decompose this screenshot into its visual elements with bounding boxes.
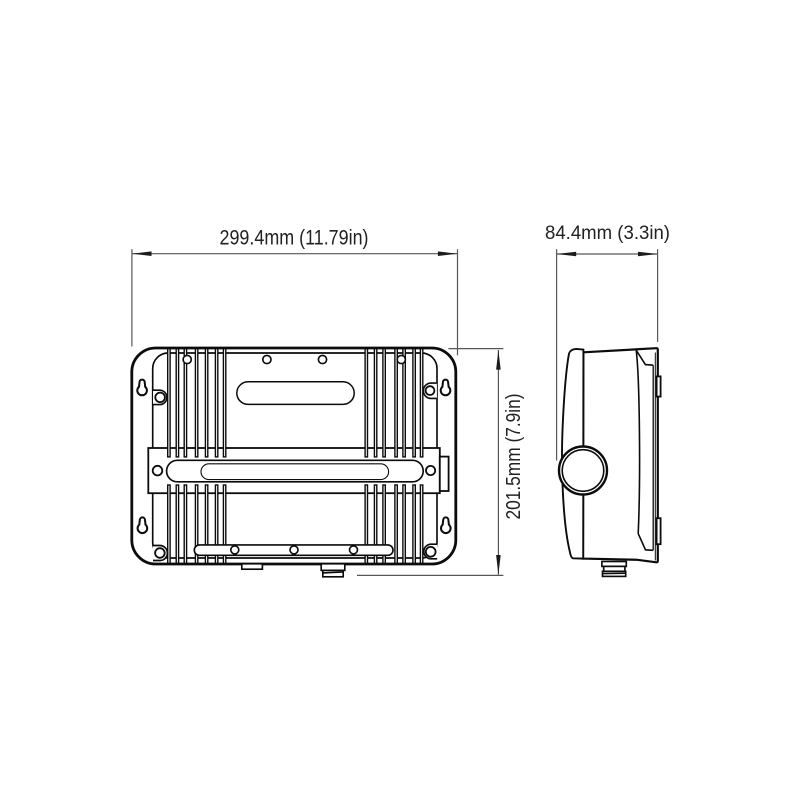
svg-text:201.5mm (7.9in): 201.5mm (7.9in) — [503, 394, 525, 520]
svg-text:299.4mm (11.79in): 299.4mm (11.79in) — [220, 227, 369, 250]
svg-text:84.4mm (3.3in): 84.4mm (3.3in) — [545, 222, 670, 244]
